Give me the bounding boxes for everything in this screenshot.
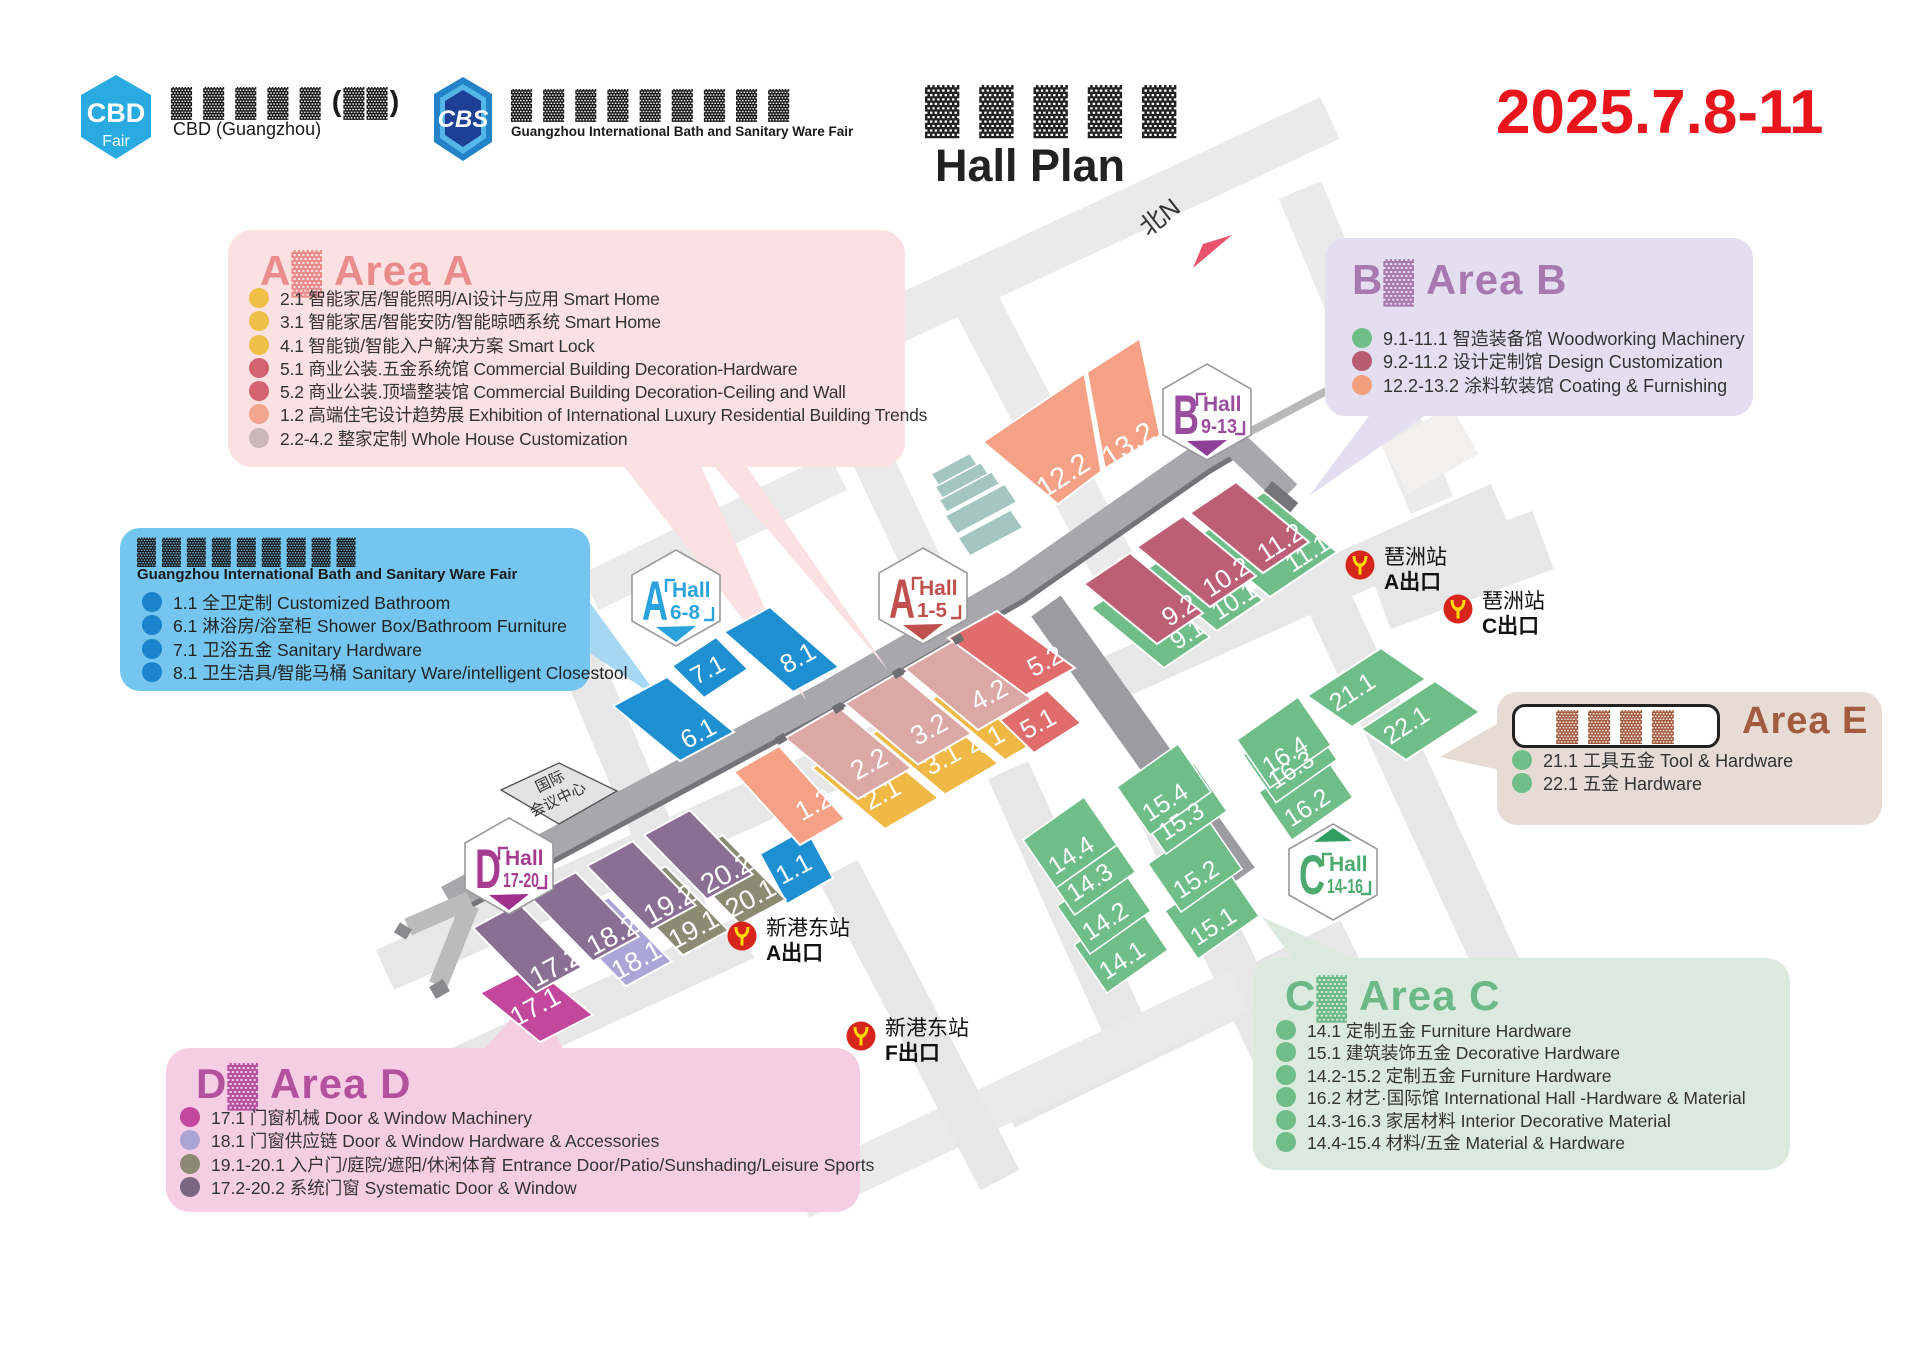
svg-text:A出口: A出口 xyxy=(1384,571,1441,594)
svg-text:1-5: 1-5 xyxy=(917,600,947,622)
svg-text:D: D xyxy=(475,837,501,900)
svg-text:9-13: 9-13 xyxy=(1201,416,1237,438)
svg-text:B: B xyxy=(1173,383,1199,446)
svg-text:Hall: Hall xyxy=(1203,393,1242,416)
svg-text:14-16: 14-16 xyxy=(1327,876,1363,898)
svg-text:6-8: 6-8 xyxy=(670,602,700,624)
svg-text:Hall: Hall xyxy=(1329,853,1368,876)
svg-text:Hall: Hall xyxy=(919,577,958,600)
svg-text:Hall: Hall xyxy=(505,847,544,870)
svg-text:A出口: A出口 xyxy=(766,942,823,965)
svg-text:C: C xyxy=(1299,843,1325,906)
svg-text:CBD: CBD xyxy=(87,98,146,128)
svg-text:新港东站: 新港东站 xyxy=(885,1017,969,1040)
svg-text:CBS: CBS xyxy=(438,106,489,133)
svg-text:17-20: 17-20 xyxy=(503,870,539,892)
svg-text:A: A xyxy=(642,569,668,632)
svg-text:新港东站: 新港东站 xyxy=(766,917,850,940)
svg-text:F出口: F出口 xyxy=(885,1042,940,1065)
svg-text:Fair: Fair xyxy=(102,133,130,150)
svg-text:Hall: Hall xyxy=(672,579,711,602)
svg-text:琶洲站: 琶洲站 xyxy=(1384,546,1447,569)
svg-text:A: A xyxy=(889,567,915,630)
svg-text:琶洲站: 琶洲站 xyxy=(1482,590,1545,613)
svg-text:C出口: C出口 xyxy=(1482,615,1539,638)
